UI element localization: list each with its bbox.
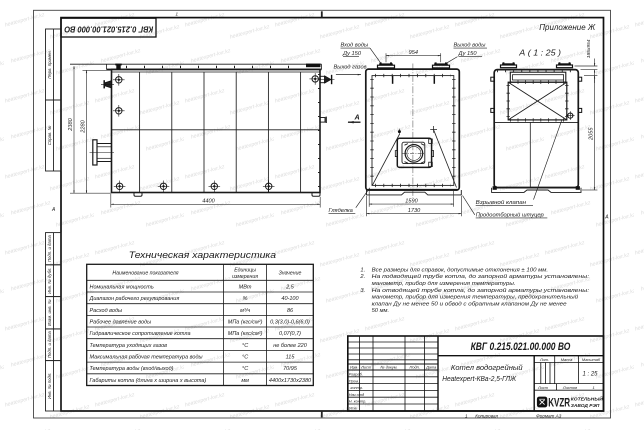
- svg-text:50 мм.: 50 мм.: [372, 308, 389, 314]
- svg-text:4400: 4400: [202, 199, 215, 205]
- svg-text:Выход воды: Выход воды: [454, 43, 487, 49]
- svg-text:Heatexpert-КВа-2,5-ГЛЖ: Heatexpert-КВа-2,5-ГЛЖ: [442, 374, 517, 383]
- svg-text:№ докум.: № докум.: [380, 365, 397, 370]
- svg-text:Расход воды: Расход воды: [90, 308, 123, 314]
- svg-text:Температура уходящих газов: Температура уходящих газов: [90, 343, 168, 349]
- svg-text:Единицы: Единицы: [234, 268, 256, 274]
- svg-text:Техническая характеристика: Техническая характеристика: [129, 250, 276, 260]
- svg-text:А: А: [604, 215, 609, 221]
- svg-text:2380: 2380: [68, 117, 74, 131]
- svg-text:Выход газов: Выход газов: [334, 64, 367, 70]
- svg-text:контр.: контр.: [351, 385, 364, 390]
- svg-text:КОТЕЛЬНЫЙ: КОТЕЛЬНЫЙ: [571, 394, 604, 401]
- svg-text:Подп. и дата: Подп. и дата: [47, 331, 52, 359]
- svg-text:На отводящей трубе котла, до з: На отводящей трубе котла, до запорной ар…: [372, 287, 590, 294]
- svg-text:3.: 3.: [360, 288, 365, 294]
- svg-text:°С: °С: [242, 366, 248, 372]
- svg-text:0,07(0,7): 0,07(0,7): [279, 331, 301, 337]
- svg-text:70/95: 70/95: [283, 366, 298, 372]
- svg-text:Максимальная рабочая температу: Максимальная рабочая температура воды: [90, 355, 203, 361]
- svg-text:Взам. инв. №: Взам. инв. №: [47, 299, 52, 326]
- svg-text:2.: 2.: [359, 274, 365, 280]
- svg-text:2055: 2055: [588, 127, 594, 141]
- svg-text:1: 1: [593, 385, 595, 390]
- svg-text:Наименование показателя: Наименование показателя: [112, 270, 178, 276]
- svg-text:А ( 1 : 25 ): А ( 1 : 25 ): [518, 48, 561, 57]
- svg-text:А: А: [51, 207, 56, 213]
- svg-text:Нач.отд: Нач.отд: [349, 392, 365, 397]
- svg-text:А: А: [354, 113, 360, 122]
- svg-text:Изм: Изм: [350, 365, 358, 370]
- svg-text:Гидравлическое сопротивление к: Гидравлическое сопротивление котла: [90, 331, 191, 337]
- svg-text:Н. контр.: Н. контр.: [349, 399, 367, 404]
- svg-text:не более 220: не более 220: [273, 343, 308, 349]
- svg-text:МВт: МВт: [239, 284, 252, 290]
- svg-text:Подп.: Подп.: [410, 365, 420, 370]
- svg-text:Копировал: Копировал: [475, 413, 498, 418]
- svg-text:КВГ 0.215.021.00.000 ВО: КВГ 0.215.021.00.000 ВО: [471, 341, 571, 353]
- svg-text:°С: °С: [242, 343, 248, 349]
- svg-text:Разраб.: Разраб.: [349, 372, 363, 377]
- svg-text:манометр, прибор для измерения: манометр, прибор для измерения температу…: [372, 281, 516, 287]
- svg-text:Котел водогрейный: Котел водогрейный: [451, 363, 523, 372]
- svg-text:Пров.: Пров.: [349, 378, 359, 383]
- svg-text:Диапазон рабочего регулировани: Диапазон рабочего регулирования: [89, 296, 180, 302]
- svg-text:1 : 25: 1 : 25: [582, 372, 598, 378]
- svg-text:1: 1: [465, 413, 468, 418]
- svg-text:Справ. №: Справ. №: [47, 125, 52, 145]
- svg-text:Масса: Масса: [561, 357, 573, 362]
- svg-text:KVZR: KVZR: [548, 395, 570, 409]
- svg-text:МПа (кгс/см²): МПа (кгс/см²): [228, 331, 263, 337]
- svg-text:Формат А3: Формат А3: [536, 413, 562, 418]
- svg-text:954: 954: [409, 50, 418, 56]
- svg-text:1590: 1590: [405, 198, 418, 204]
- svg-text:Значение: Значение: [279, 270, 302, 276]
- svg-text:115: 115: [286, 355, 296, 361]
- svg-text:185х954: 185х954: [586, 39, 592, 58]
- svg-text:мм: мм: [241, 378, 249, 384]
- svg-text:Габариты котла (длина х ширина: Габариты котла (длина х ширина х высота): [90, 378, 207, 384]
- svg-text:КВГ 0.215.021.00.000 ВО: КВГ 0.215.021.00.000 ВО: [64, 25, 153, 35]
- svg-text:клапан Ду не менее 50 и обвод: клапан Ду не менее 50 и обвод с обратным…: [372, 301, 567, 307]
- svg-text:86: 86: [287, 308, 294, 314]
- svg-text:0,3(3,0)-0,6(6,0): 0,3(3,0)-0,6(6,0): [270, 320, 310, 326]
- svg-text:На подводящей трубе котла, до: На подводящей трубе котла, до запорной а…: [372, 273, 590, 280]
- svg-text:Вход воды: Вход воды: [341, 43, 369, 49]
- svg-text:Номинальная мощность: Номинальная мощность: [90, 284, 154, 290]
- svg-text:2,5: 2,5: [285, 284, 295, 290]
- svg-text:Все размеры для справок, допус: Все размеры для справок, допустимые откл…: [372, 267, 548, 273]
- svg-text:Подп. и дата: Подп. и дата: [47, 235, 52, 263]
- svg-text:Инв. № подл.: Инв. № подл.: [47, 372, 52, 399]
- svg-text:манометр, прибор для измерения: манометр, прибор для измерения температу…: [372, 294, 579, 301]
- svg-text:Продоотборный штуцер: Продоотборный штуцер: [476, 211, 544, 218]
- svg-text:Лист: Лист: [537, 385, 549, 390]
- svg-text:измерения: измерения: [232, 274, 258, 280]
- svg-text:Перв. примен.: Перв. примен.: [47, 50, 52, 79]
- svg-text:Масштаб: Масштаб: [582, 357, 601, 362]
- svg-text:2280: 2280: [80, 119, 86, 133]
- svg-text:Дата: Дата: [425, 365, 437, 370]
- svg-text:°С: °С: [242, 355, 248, 361]
- svg-text:1.: 1.: [360, 267, 365, 273]
- svg-text:Инв. № дубл.: Инв. № дубл.: [47, 267, 52, 293]
- svg-text:Рабочее давление воды: Рабочее давление воды: [90, 320, 152, 326]
- svg-text:м³/ч: м³/ч: [240, 308, 250, 314]
- svg-text:Температура воды (вход/выход): Температура воды (вход/выход): [90, 366, 174, 372]
- svg-text:Утв.: Утв.: [349, 406, 358, 411]
- svg-text:40-100: 40-100: [281, 296, 299, 302]
- svg-text:Взрывной клапан: Взрывной клапан: [476, 199, 527, 206]
- svg-text:Лист: Лист: [360, 365, 372, 370]
- svg-text:Приложение Ж: Приложение Ж: [539, 23, 596, 32]
- svg-text:ЗАВОД РЭП: ЗАВОД РЭП: [571, 403, 600, 408]
- svg-text:Листов: Листов: [562, 385, 577, 390]
- svg-text:4400х1730х2380: 4400х1730х2380: [269, 378, 312, 384]
- svg-text:МПа (кгс/см²): МПа (кгс/см²): [228, 320, 263, 326]
- svg-text:Лит.: Лит.: [539, 357, 549, 362]
- svg-text:%: %: [243, 296, 248, 302]
- svg-text:1730: 1730: [408, 208, 421, 214]
